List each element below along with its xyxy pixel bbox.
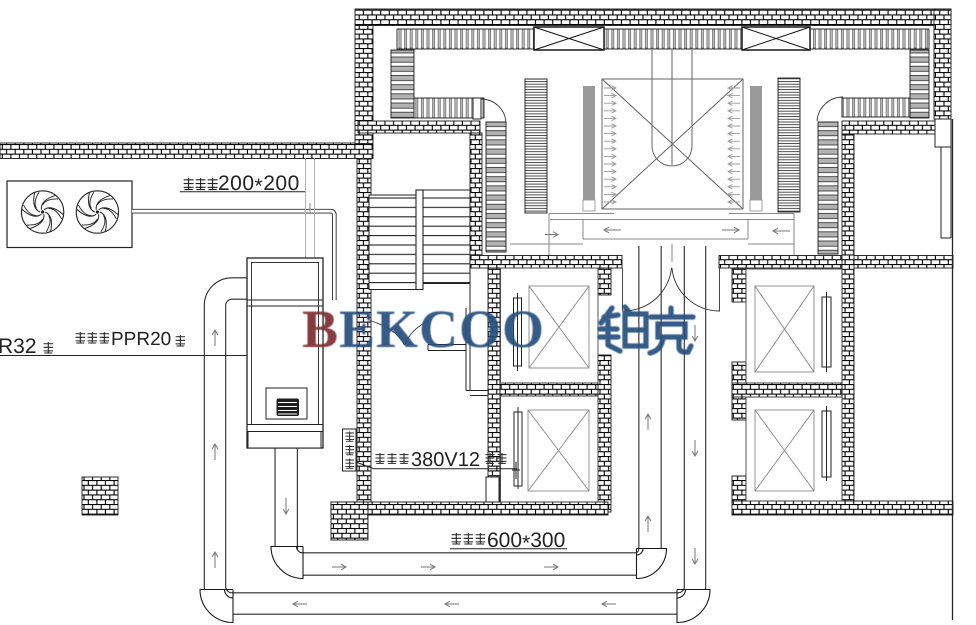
svg-text:PPR20: PPR20 <box>111 329 171 350</box>
svg-text:600*300: 600*300 <box>487 529 565 555</box>
svg-text:R32: R32 <box>0 335 37 358</box>
svg-text:200*200: 200*200 <box>218 172 300 198</box>
svg-text:BEKCOO: BEKCOO <box>302 299 545 359</box>
svg-text:380V12: 380V12 <box>411 449 480 471</box>
